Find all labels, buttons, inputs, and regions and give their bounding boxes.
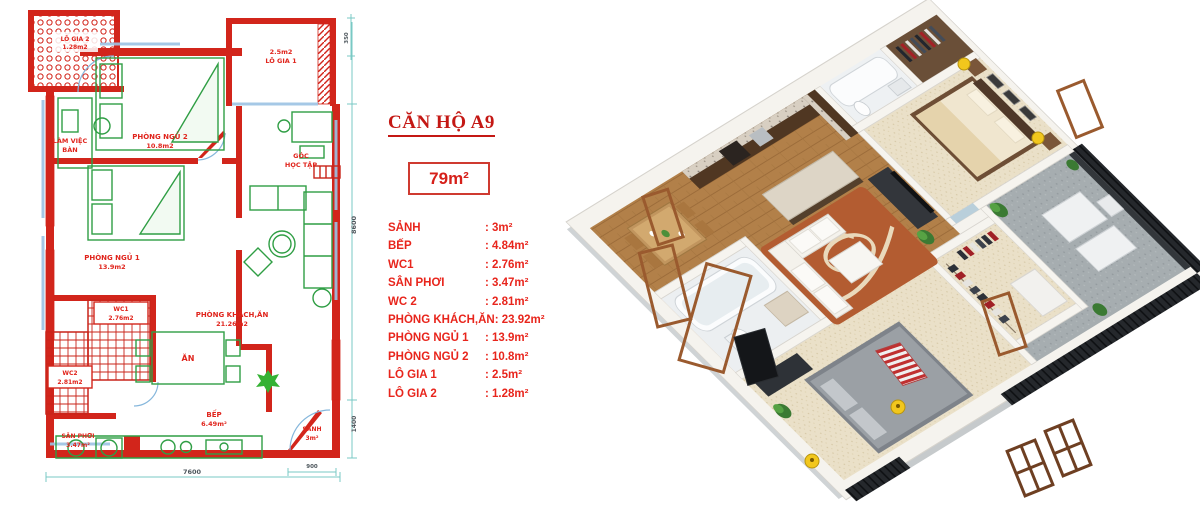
logia2-label: LÔ GIA 2: [61, 36, 90, 43]
apartment-title: CĂN HỘ A9: [388, 112, 495, 137]
room-label: SÂN PHƠI: [388, 274, 485, 292]
room-value: : 23.92m²: [495, 311, 545, 329]
kitchen-area: 6.49m²: [201, 420, 227, 428]
room-labels: LÔ GIA 2 1.28m2 LÀM VIỆC BÀN PHÒNG NGỦ 2…: [53, 36, 322, 449]
apartment-marketing-sheet: LÔ GIA 2 1.28m2 LÀM VIỆC BÀN PHÒNG NGỦ 2…: [0, 0, 1200, 513]
living-area: 21.26m2: [216, 320, 248, 328]
plant-icon: [256, 370, 280, 393]
room-label: SẢNH: [388, 219, 485, 237]
2d-floor-plan: LÔ GIA 2 1.28m2 LÀM VIỆC BÀN PHÒNG NGỦ 2…: [0, 0, 380, 513]
room-value: : 2.76m²: [485, 256, 528, 274]
bedroom1-area: 13.9m2: [98, 263, 125, 271]
room-label: WC 2: [388, 293, 485, 311]
dim-right-main: 8600: [350, 215, 358, 234]
study-label-1: GÓC: [293, 151, 309, 160]
lock-keyhole: [896, 404, 900, 408]
hall-label: SẢNH: [302, 425, 321, 433]
dim-right-lower: 1400: [351, 416, 358, 433]
lamp-icon: [1032, 132, 1044, 144]
hall-area: 3m²: [305, 435, 318, 442]
sanphoi-area: 3.47m²: [66, 442, 90, 449]
study-label-2: HỌC TẬP: [285, 160, 317, 169]
total-area-value: 79m²: [429, 169, 469, 189]
kitchen-label: BẾP: [206, 409, 221, 419]
room-value: : 2.81m²: [485, 293, 528, 311]
3d-render: [560, 0, 1200, 513]
bedroom1-label: PHÒNG NGỦ 1: [84, 252, 140, 262]
dining-label: ĂN: [182, 352, 195, 363]
wc2-label: WC2: [62, 370, 77, 377]
bedroom2-label: PHÒNG NGỦ 2: [132, 131, 188, 141]
room-label: WC1: [388, 256, 485, 274]
dim-bottom: 7600: [183, 468, 202, 476]
wc2-area: 2.81m2: [57, 379, 82, 386]
lock-keyhole: [810, 458, 814, 462]
room-label: LÔ GIA 2: [388, 385, 485, 403]
room-label: PHÒNG NGỦ 1: [388, 329, 485, 347]
apartment-3d-body: [562, 0, 1200, 507]
workdesk-label-2: BÀN: [62, 145, 77, 154]
room-label: PHÒNG NGỦ 2: [388, 348, 485, 366]
wc1-label: WC1: [113, 306, 128, 313]
logia1-label: LÔ GIA 1: [265, 56, 297, 65]
room-value: : 2.5m²: [485, 366, 522, 384]
room-label: PHÒNG KHÁCH,ĂN: [388, 311, 495, 329]
room-label: LÔ GIA 1: [388, 366, 485, 384]
dim-top-right: 350: [344, 32, 350, 44]
room-value: : 3.47m²: [485, 274, 528, 292]
logia1-area: 2.5m2: [270, 48, 293, 56]
living-label: PHÒNG KHÁCH,ĂN: [196, 310, 269, 319]
workdesk-label-1: LÀM VIỆC: [53, 136, 88, 145]
wc1-area: 2.76m2: [108, 315, 133, 322]
room-value: : 13.9m²: [485, 329, 528, 347]
room-value: : 1.28m²: [485, 385, 528, 403]
dim-hall: 900: [306, 464, 318, 470]
room-value: : 3m²: [485, 219, 512, 237]
lamp-icon: [958, 58, 970, 70]
logia2-area: 1.28m2: [62, 44, 87, 51]
total-area-box: 79m²: [408, 162, 490, 195]
sanphoi-label: SÂN PHƠI: [62, 433, 95, 440]
bedroom2-area: 10.8m2: [146, 142, 173, 150]
bedroom-windows: [1007, 420, 1091, 496]
room-value: : 4.84m²: [485, 237, 528, 255]
room-label: BẾP: [388, 237, 485, 255]
room-value: : 10.8m²: [485, 348, 528, 366]
